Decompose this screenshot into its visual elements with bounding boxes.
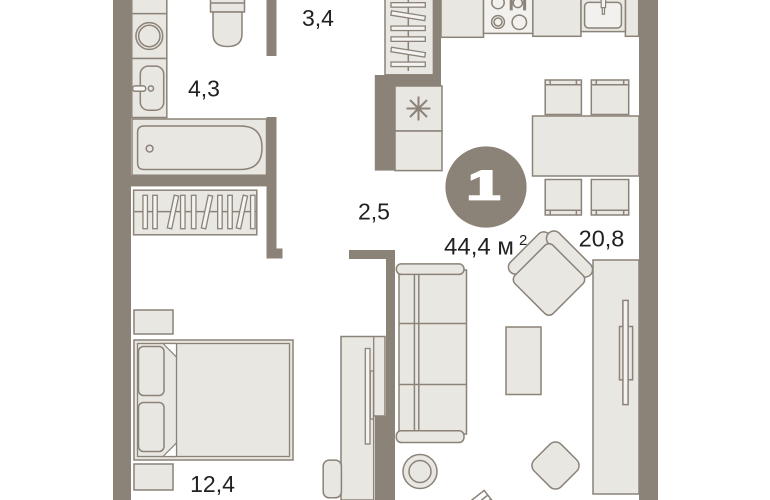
svg-text:12,4: 12,4 bbox=[190, 471, 235, 497]
svg-text:44,4 м: 44,4 м bbox=[444, 234, 514, 261]
svg-text:20,8: 20,8 bbox=[579, 226, 625, 252]
svg-text:2: 2 bbox=[519, 232, 527, 249]
svg-text:4,3: 4,3 bbox=[188, 76, 220, 102]
svg-text:3,4: 3,4 bbox=[302, 5, 334, 31]
svg-text:2,5: 2,5 bbox=[358, 199, 390, 225]
